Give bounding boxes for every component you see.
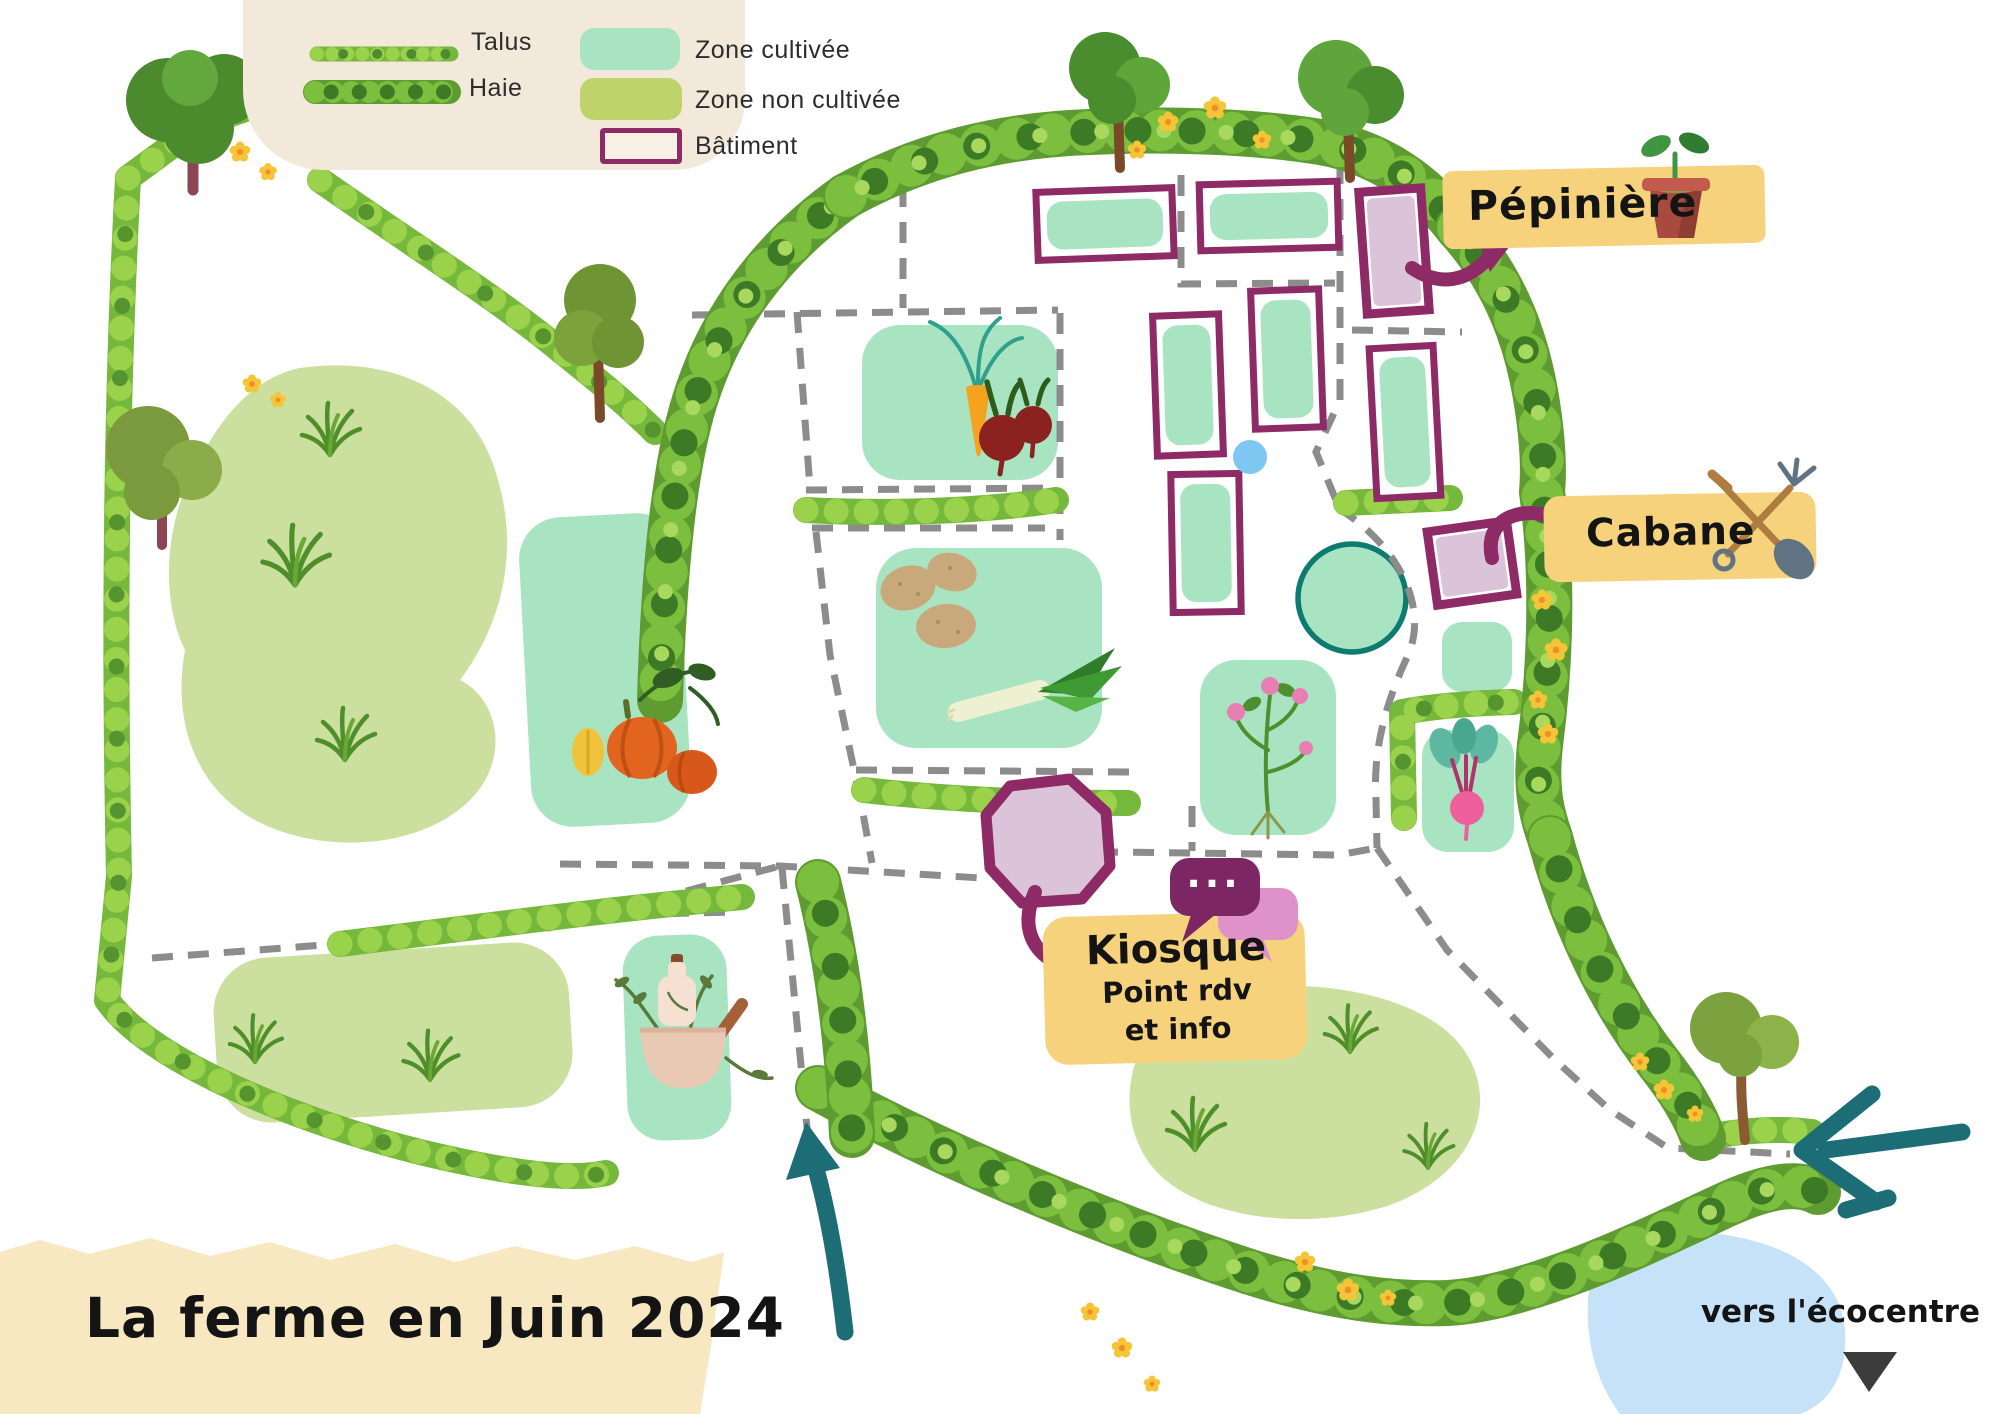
- label-kiosque-block: Kiosque Point rdv et info: [1050, 923, 1303, 1052]
- legend-card: Talus Haie Zone cultivée Zone non cultiv…: [243, 0, 745, 170]
- zone-small-plot: [1442, 622, 1512, 692]
- greenhouse-4: [1251, 289, 1324, 429]
- farm-map-svg: [0, 0, 2000, 1414]
- label-pepiniere: Pépinière: [1468, 178, 1698, 230]
- greenhouse-6: [1171, 473, 1241, 612]
- farm-map-poster: Talus Haie Zone cultivée Zone non cultiv…: [0, 0, 2000, 1414]
- greenhouse-2: [1199, 181, 1339, 251]
- uncultivated-zone-swatch: [580, 78, 682, 120]
- label-kiosque-title: Kiosque: [1050, 923, 1301, 976]
- entrance-arrow-bottom: [786, 1122, 845, 1332]
- building-swatch: [600, 128, 682, 164]
- water-dot: [1233, 440, 1267, 474]
- legend-label-haie: Haie: [469, 74, 522, 103]
- legend-label-batiment: Bâtiment: [695, 132, 798, 161]
- building-pepiniere: [1359, 188, 1429, 314]
- speech-bubble-dots: ...: [1178, 852, 1250, 896]
- haie-hedge-icon: [301, 56, 463, 112]
- greenhouse-5: [1369, 345, 1441, 498]
- legend-label-zone-non-cultivee: Zone non cultivée: [695, 86, 901, 115]
- label-kiosque-line1: Point rdv: [1052, 969, 1303, 1014]
- legend-label-zone-cultivee: Zone cultivée: [695, 36, 850, 65]
- zone-left-meadow: [169, 365, 507, 842]
- label-kiosque-line2: et info: [1053, 1007, 1304, 1052]
- label-cabane: Cabane: [1586, 509, 1756, 557]
- legend-label-talus: Talus: [471, 28, 532, 57]
- label-ecocentre: vers l'écocentre: [1660, 1294, 1980, 1330]
- page-title: La ferme en Juin 2024: [85, 1286, 785, 1350]
- ecocentre-direction-triangle: [1843, 1352, 1897, 1392]
- greenhouse-1: [1036, 188, 1174, 261]
- cultivated-zone-swatch: [580, 28, 680, 70]
- building-kiosque-octagon: [986, 779, 1110, 903]
- greenhouse-3: [1153, 314, 1224, 456]
- building-cabane: [1427, 521, 1517, 605]
